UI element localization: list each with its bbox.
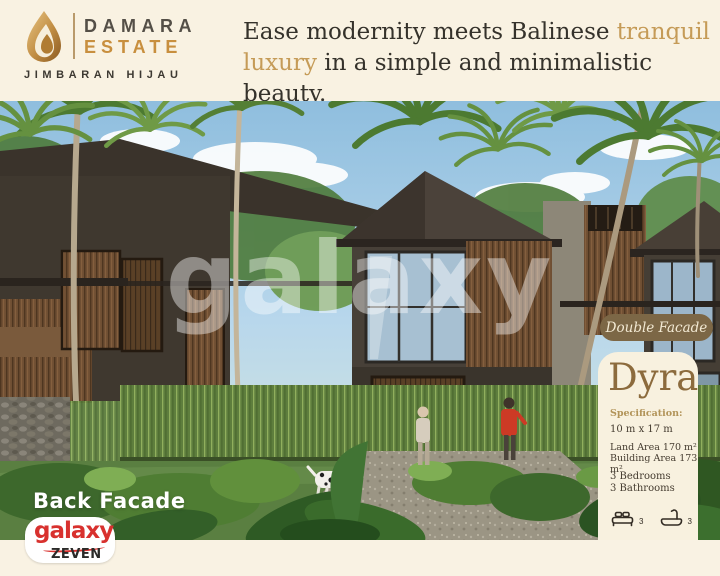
amenity-icons: 3 3 [609,508,692,527]
bed-icon [609,509,636,527]
spec-bedrooms: 3 Bedrooms [610,471,675,483]
header: DAMARA ESTATE JIMBARAN HIJAU Ease modern… [0,0,720,101]
publisher-logo: galaxy ZEVEN [25,517,115,563]
brand-location: JIMBARAN HIJAU [24,69,188,81]
flyer-page: DAMARA ESTATE JIMBARAN HIJAU Ease modern… [0,0,720,576]
spec-bathrooms: 3 Bathrooms [610,483,675,495]
brand-names: DAMARA ESTATE [84,17,197,56]
tagline-text-1: Ease modernity meets Balinese [243,19,609,45]
publisher-sub: ZEVEN [51,547,102,562]
bedroom-count: 3 [609,509,643,527]
bed-count: 3 [639,517,643,527]
tagline-line2: luxury in a simple and minimalistic beau… [243,50,652,107]
bathroom-count: 3 [659,508,691,527]
tagline: Ease modernity meets Balinese tranquil l… [243,17,713,110]
brand-lockup: DAMARA ESTATE [24,10,188,62]
spec-heading: Specification: [610,408,683,419]
spec-rooms: 3 Bedrooms 3 Bathrooms [610,471,675,494]
unit-type-badge: Double Facade [600,314,713,341]
spec-land-area: Land Area 170 m² [610,442,698,453]
brand-divider [73,13,75,59]
spec-dimensions: 10 m x 17 m [610,424,673,435]
flame-icon [24,10,64,62]
bath-count: 3 [687,517,691,527]
tagline-highlight-2: luxury [243,50,317,76]
publisher-name: galaxy [34,518,113,544]
tagline-highlight-1: tranquil [617,19,710,45]
facade-label: Back Facade [33,489,186,513]
brand-logo: DAMARA ESTATE JIMBARAN HIJAU [24,10,188,81]
brand-name-bottom: ESTATE [84,38,197,56]
bathtub-icon [659,508,684,527]
unit-name: Dyra [608,352,698,404]
brand-name-top: DAMARA [84,17,197,35]
tagline-line1: Ease modernity meets Balinese tranquil [243,19,710,45]
